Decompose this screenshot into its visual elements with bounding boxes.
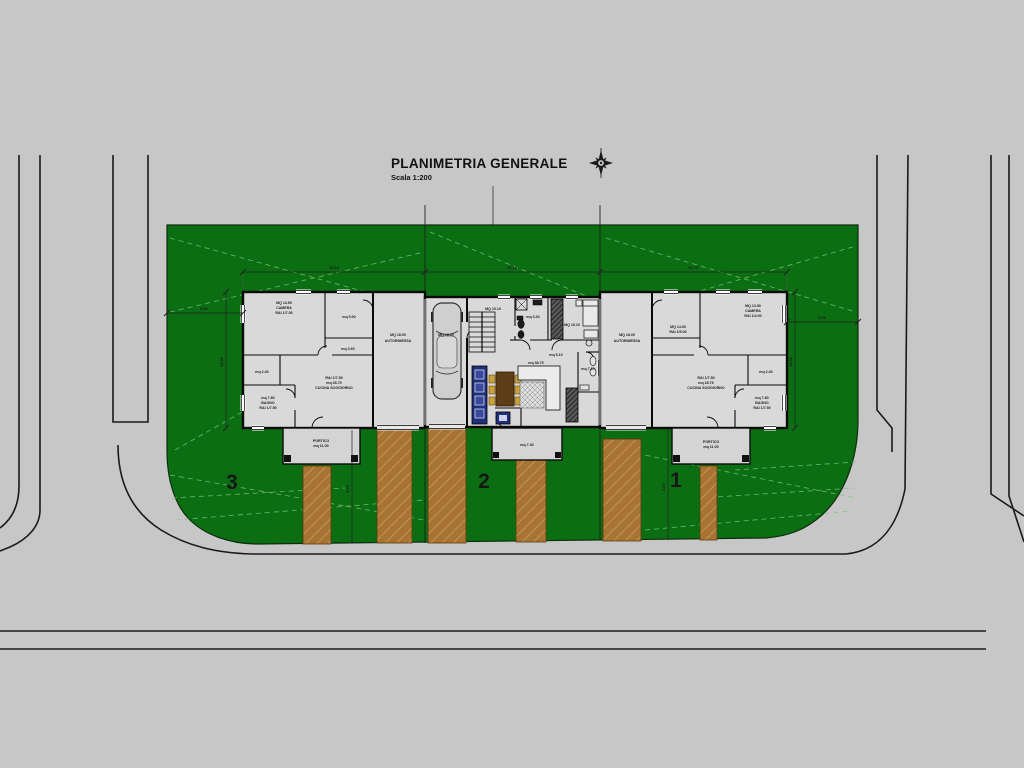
label-dim-left-h: 5.00	[200, 306, 209, 311]
label-u1-room14-rai: RAI 1/5.00	[669, 330, 686, 334]
label-dim-left-v: 12.50	[219, 356, 224, 367]
label-u3-garage: AUTORIMESSA	[385, 339, 412, 343]
label-u1-portico-mq: mq 11.00	[703, 445, 718, 449]
label-u3-bagno: BAGNO	[261, 401, 275, 405]
lot3-number: 3	[226, 471, 238, 494]
label-u1-portico: PORTICO	[703, 440, 720, 444]
driveway-lot2	[428, 429, 466, 543]
label-u2-garage-mq: MQ 18.00	[438, 333, 454, 337]
label-u2-hall: MQ 10.10	[485, 307, 501, 311]
label-u1-camera-mq: MQ 13.50	[745, 304, 761, 308]
label-u2-corr: mq 5.10	[549, 353, 562, 357]
wardrobe	[551, 299, 563, 339]
site-plan-drawing: PLANIMETRIA GENERALE Scala 1:200 3 2 1 M…	[0, 0, 1024, 768]
label-dim-top-3: 10.10	[688, 265, 699, 270]
label-u3-camera: CAMERA	[276, 306, 292, 310]
label-u1-living-mq: mq 28.75	[698, 381, 713, 385]
label-u3-room5: mq 5.00	[342, 315, 355, 319]
lot1-number: 1	[670, 469, 682, 492]
label-u3-bagno-mq: mq 7.80	[261, 396, 274, 400]
label-u1-bagno-rai: RAI 1/7.50	[753, 406, 770, 410]
scale-label: Scala 1:200	[391, 173, 432, 182]
label-u3-bagno-rai: RAI 1/7.50	[259, 406, 276, 410]
label-u3-portico-mq: mq 11.00	[313, 444, 328, 448]
label-dim-right-h: 5.00	[818, 315, 827, 320]
page-title: PLANIMETRIA GENERALE	[391, 156, 568, 171]
label-dim-top-1: 10.10	[329, 265, 340, 270]
label-dim-drive-3: 4.00	[345, 484, 350, 493]
lot2-number: 2	[478, 470, 490, 493]
label-u1-garage: AUTORIMESSA	[614, 339, 641, 343]
walkway-lot3	[303, 466, 331, 544]
label-dim-drive-1: 4.00	[661, 482, 666, 491]
label-u2-bed-mq: MQ 15.10	[564, 323, 580, 327]
label-u1-rip: mq 2.40	[759, 370, 772, 374]
label-u3-living-rai: RAI 1/7.50	[325, 376, 342, 380]
label-u2-patio-mq: mq 7.40	[520, 443, 533, 447]
dining-table	[489, 372, 521, 406]
label-u2-living: mq 38.75	[528, 361, 543, 365]
label-u3-camera-mq: MQ 13.50	[276, 301, 292, 305]
label-u3-living-mq: mq 28.75	[326, 381, 341, 385]
label-u1-camera: CAMERA	[745, 309, 761, 313]
car	[431, 303, 463, 399]
label-u1-bagno-mq: mq 7.80	[755, 396, 768, 400]
plan-canvas: PLANIMETRIA GENERALE Scala 1:200 3 2 1 M…	[0, 0, 1024, 768]
label-u1-camera-rai: RAI 1/4.00	[744, 314, 761, 318]
label-u1-living-rai: RAI 1/7.50	[697, 376, 714, 380]
label-u1-bagno: BAGNO	[755, 401, 769, 405]
sofa-and-rug	[518, 366, 560, 410]
label-u2-bath: mq 3.20	[526, 315, 539, 319]
label-u3-living: CUCINA SOGGIORNO	[315, 386, 353, 390]
label-u3-garage-mq: MQ 18.00	[390, 333, 406, 337]
label-u1-garage-mq: MQ 18.00	[619, 333, 635, 337]
label-u3-hall: mq 3.60	[341, 347, 354, 351]
label-u3-portico: PORTICO	[313, 439, 330, 443]
label-u3-rip: mq 2.40	[255, 370, 268, 374]
label-dim-top-2: 10.10	[507, 265, 518, 270]
label-dim-right-v: 12.50	[788, 356, 793, 367]
laundry-appliance	[496, 412, 510, 424]
label-u1-room14: MQ 14.00	[670, 325, 686, 329]
staircase	[469, 312, 495, 352]
walkway-lot2	[516, 460, 546, 542]
driveway-lot1	[603, 439, 641, 541]
label-u2-bath2: mq 7.10	[581, 367, 594, 371]
driveway-lot3	[377, 429, 412, 543]
kitchen-counter	[472, 366, 487, 424]
label-u1-living: CUCINA SOGGIORNO	[687, 386, 725, 390]
sideboard	[566, 388, 578, 422]
walkway-lot1	[700, 466, 717, 540]
label-u3-camera-rai: RAI 1/7.50	[275, 311, 292, 315]
